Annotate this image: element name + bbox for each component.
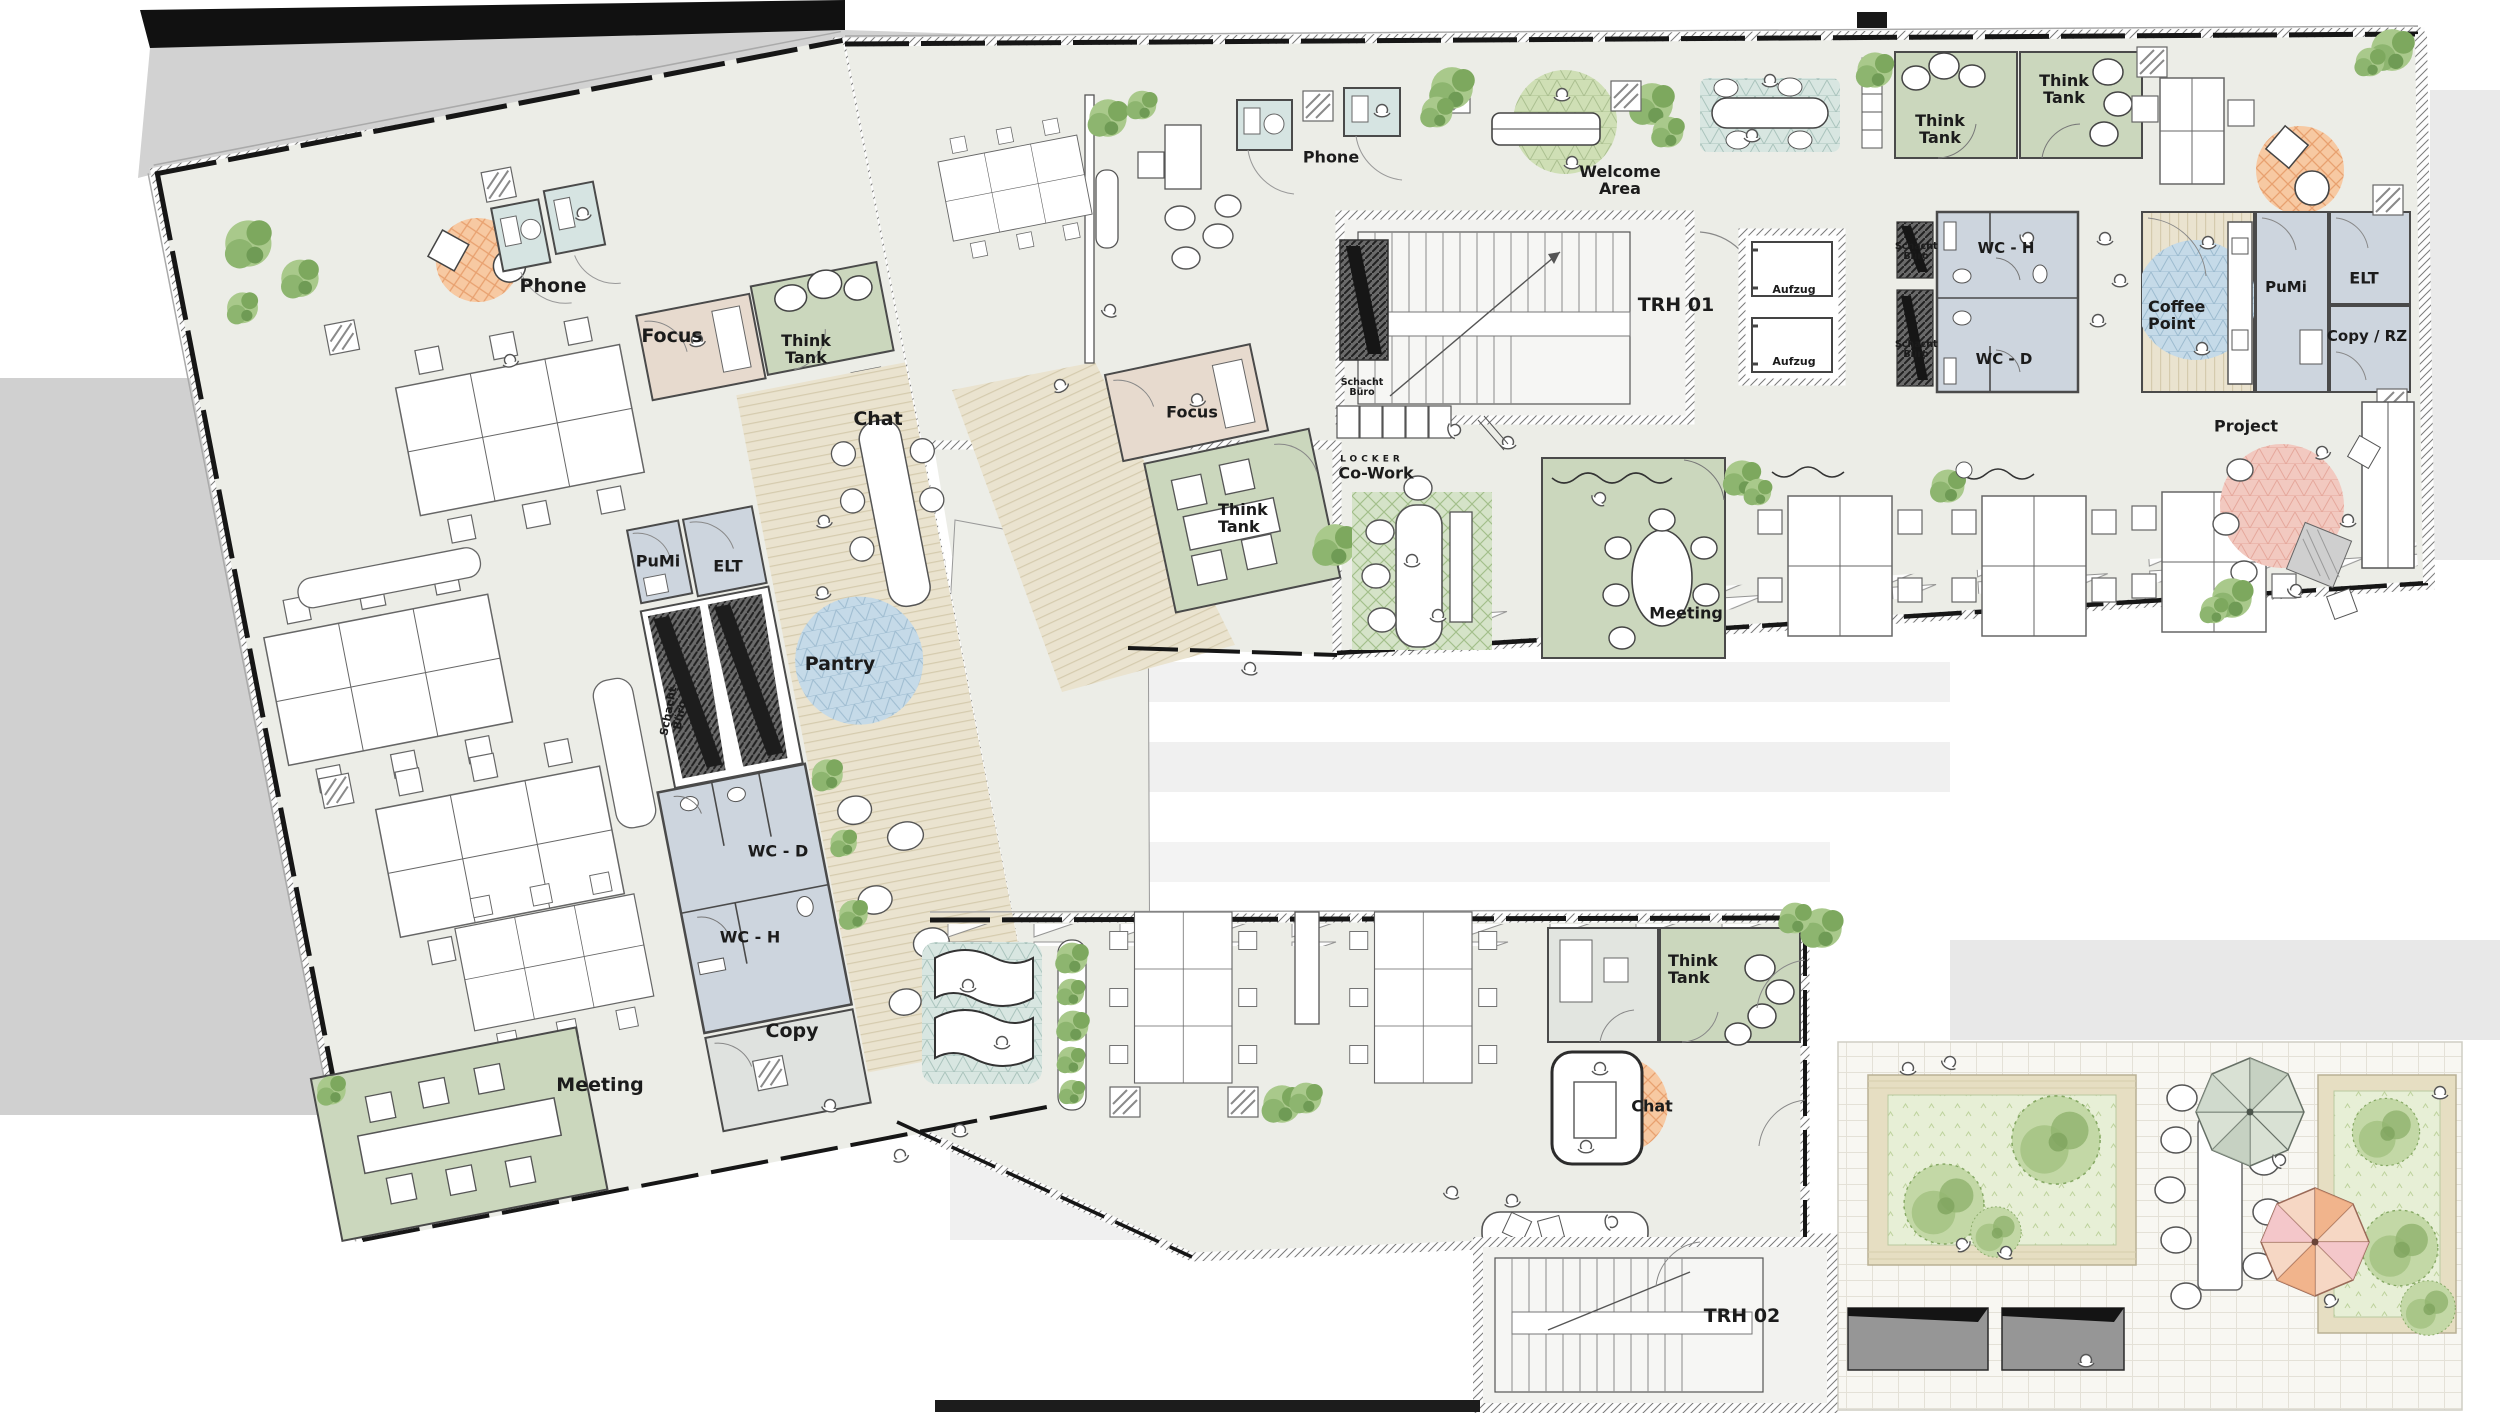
shaft-trh01 <box>1340 240 1388 360</box>
elevator-aufzug-2 <box>1752 318 1832 372</box>
stairs-trh02 <box>1478 1242 1832 1408</box>
lounge-circle-ne <box>2256 126 2344 214</box>
room-pumi-top <box>2256 212 2328 392</box>
planter-column <box>1055 940 1090 1110</box>
umbrella-green <box>2196 1058 2304 1166</box>
shafts-right <box>1897 222 1933 386</box>
room-meeting-top <box>1542 458 1725 658</box>
lockers <box>1337 406 1451 438</box>
room-elt-top <box>2330 212 2410 304</box>
open-meeting-zone <box>1700 75 1840 153</box>
co-work-zone <box>1352 476 1492 650</box>
lounge-pod-west <box>922 942 1042 1084</box>
floor-plan-graphic <box>0 0 2500 1413</box>
umbrella-pink <box>2261 1188 2369 1296</box>
room-coffee-point <box>2136 212 2256 392</box>
wc-block-top <box>1937 212 2078 392</box>
elevators <box>1742 232 1842 382</box>
room-copy-rz <box>2330 306 2410 392</box>
terrace <box>1838 1042 2462 1410</box>
terrace-planter-1 <box>1868 1075 2136 1265</box>
elevator-aufzug-1 <box>1752 242 1832 296</box>
floor-plan: Phone Focus Think Tank Chat PuMi ELT Pan… <box>0 0 2500 1413</box>
room-elt-left <box>683 506 767 596</box>
